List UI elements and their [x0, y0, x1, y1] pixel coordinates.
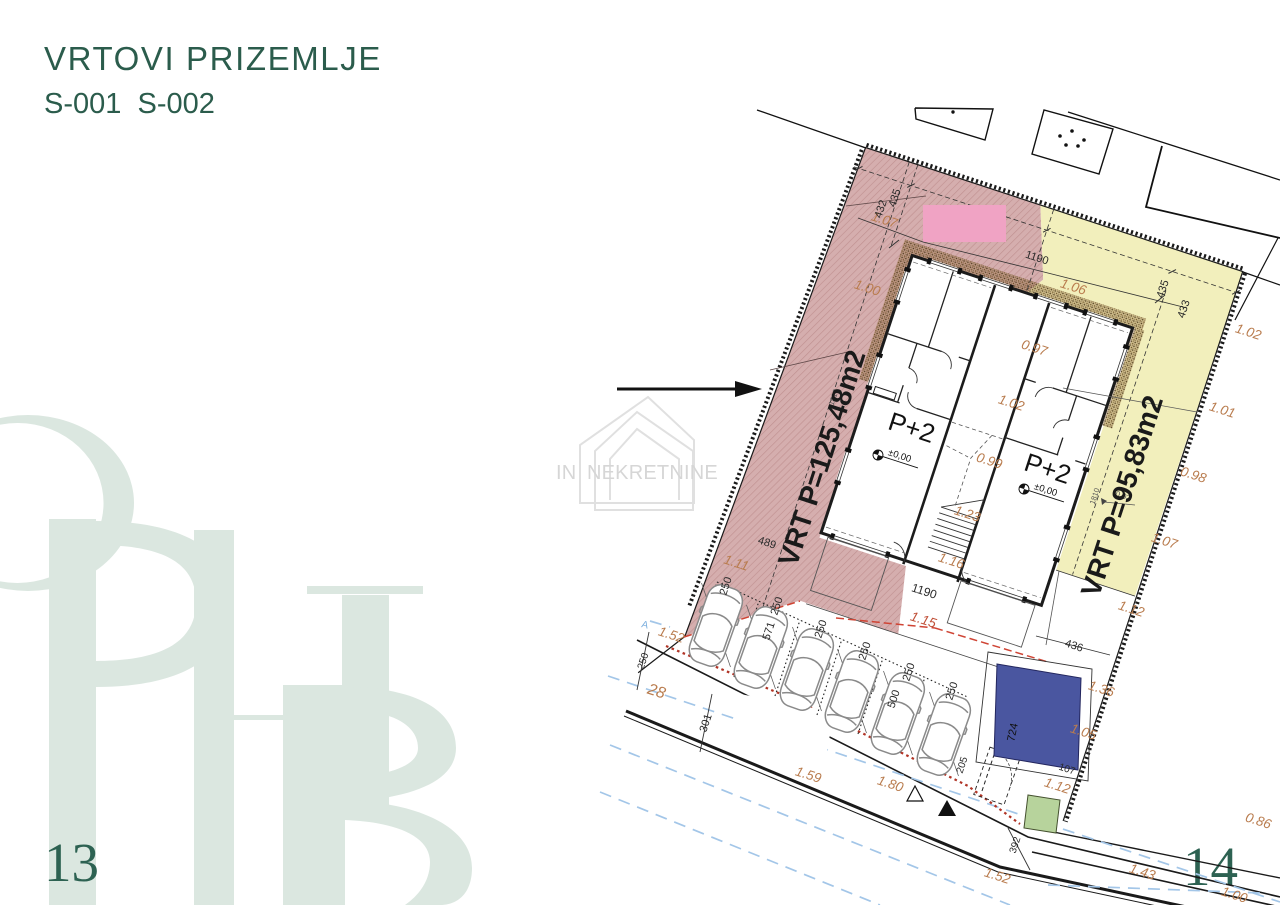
- svg-text:13: 13: [44, 832, 99, 893]
- svg-text:IN: IN: [556, 462, 576, 484]
- svg-text:S-001 S-002: S-001 S-002: [44, 88, 215, 120]
- svg-text:VRTOVI PRIZEMLJE: VRTOVI PRIZEMLJE: [44, 40, 382, 77]
- svg-text:NEKRETNINE: NEKRETNINE: [587, 462, 718, 484]
